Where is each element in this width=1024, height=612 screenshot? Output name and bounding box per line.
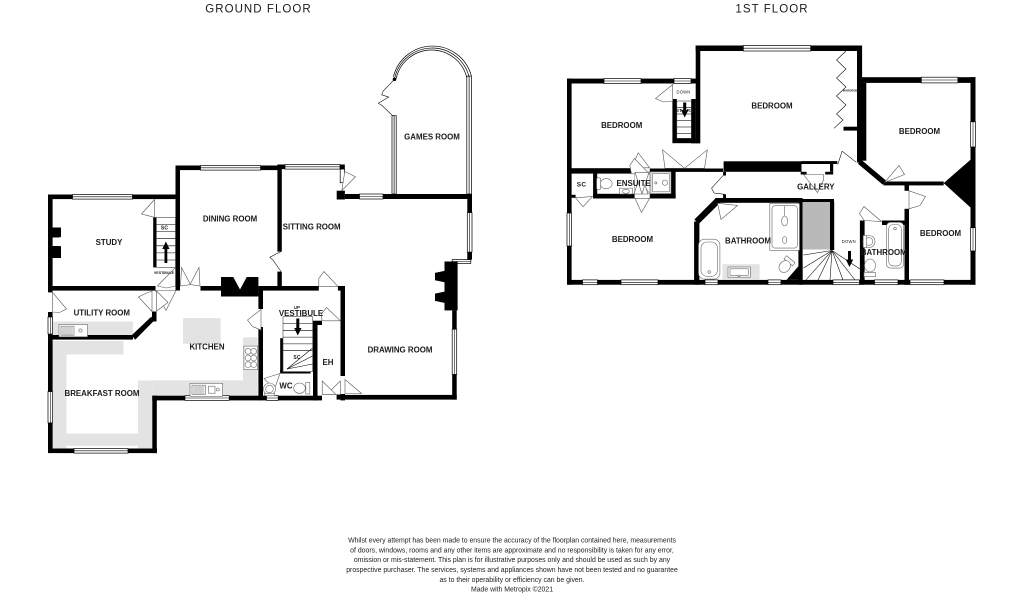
svg-text:SC: SC xyxy=(577,181,587,188)
svg-text:BEDROOM: BEDROOM xyxy=(920,229,962,238)
svg-text:VESTIBULE: VESTIBULE xyxy=(154,271,175,275)
svg-text:GAMES ROOM: GAMES ROOM xyxy=(404,133,460,142)
svg-text:BATHROOM: BATHROOM xyxy=(861,248,907,257)
svg-text:SC: SC xyxy=(161,226,169,232)
svg-text:DRAWING ROOM: DRAWING ROOM xyxy=(368,346,433,355)
svg-text:BEDROOM: BEDROOM xyxy=(601,121,643,130)
svg-text:1ST FLOOR: 1ST FLOOR xyxy=(735,4,808,16)
svg-text:KITCHEN: KITCHEN xyxy=(189,342,224,351)
svg-text:BEDROOM: BEDROOM xyxy=(612,235,654,244)
svg-text:EH: EH xyxy=(323,358,334,367)
svg-text:as to their operability or eff: as to their operability or efficiency ca… xyxy=(439,577,584,584)
svg-text:prospective purchaser. The ser: prospective purchaser. The services, sys… xyxy=(346,567,678,574)
svg-text:BEDROOM: BEDROOM xyxy=(751,102,793,111)
svg-text:STAIRS: STAIRS xyxy=(676,108,693,113)
svg-text:WARDROBE: WARDROBE xyxy=(843,89,860,93)
svg-text:WC: WC xyxy=(279,382,292,391)
svg-text:DOWN: DOWN xyxy=(676,90,690,95)
svg-text:GALLERY: GALLERY xyxy=(797,182,835,191)
svg-text:DOWN: DOWN xyxy=(842,239,856,244)
svg-text:SITTING ROOM: SITTING ROOM xyxy=(283,222,341,231)
svg-text:of doors, windows, rooms and a: of doors, windows, rooms and any other i… xyxy=(350,547,674,554)
svg-text:BATHROOM: BATHROOM xyxy=(725,237,771,246)
svg-text:BREAKFAST ROOM: BREAKFAST ROOM xyxy=(65,389,140,398)
svg-text:omission or mis-statement. Thi: omission or mis-statement. This plan is … xyxy=(354,557,671,564)
svg-text:ENSUITE: ENSUITE xyxy=(616,179,650,188)
svg-text:Whilst every attempt has been: Whilst every attempt has been made to en… xyxy=(348,538,676,545)
svg-text:Made with Metropix ©2021: Made with Metropix ©2021 xyxy=(471,586,553,594)
svg-text:SC: SC xyxy=(293,355,301,361)
svg-text:DINING ROOM: DINING ROOM xyxy=(203,215,258,224)
svg-text:BEDROOM: BEDROOM xyxy=(899,127,941,136)
svg-text:GROUND FLOOR: GROUND FLOOR xyxy=(205,4,312,16)
svg-text:STUDY: STUDY xyxy=(96,238,123,247)
svg-text:VESTIBULE: VESTIBULE xyxy=(279,309,323,318)
svg-text:UP: UP xyxy=(294,305,300,310)
svg-text:UTILITY ROOM: UTILITY ROOM xyxy=(74,309,131,318)
